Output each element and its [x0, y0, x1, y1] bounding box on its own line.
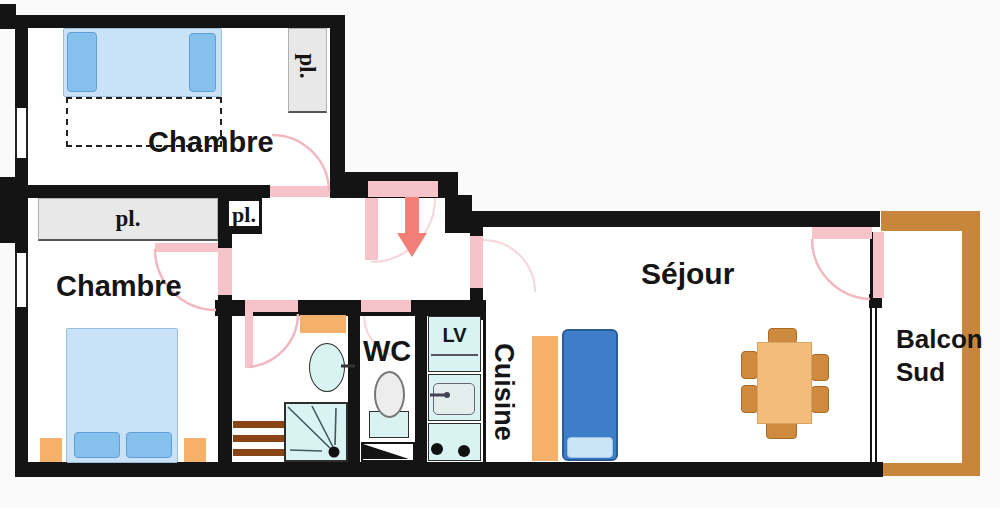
shower — [284, 402, 348, 462]
door-bathroom — [245, 300, 298, 312]
entry-door-leaf — [365, 198, 378, 260]
stove — [428, 423, 481, 461]
radiator-bar — [233, 421, 288, 428]
toilet-bowl — [374, 371, 405, 418]
wall-segment — [15, 185, 270, 198]
closet-label: pl. — [226, 202, 262, 228]
room-label-bedroom-top: Chambre — [148, 127, 274, 157]
wall-stub — [0, 177, 18, 243]
duct-box — [361, 442, 415, 462]
room-label-living: Séjour — [641, 258, 734, 290]
nightstand — [40, 438, 62, 462]
closet-label: pl. — [38, 206, 218, 232]
balcony-wall — [883, 463, 980, 476]
radiator-bar — [233, 449, 288, 456]
room-label-bedroom-left: Chambre — [56, 271, 182, 301]
chair — [811, 386, 829, 413]
window-line — [875, 306, 877, 463]
window-line — [870, 306, 872, 463]
wall-segment — [15, 15, 28, 108]
bed-pillow — [126, 432, 172, 458]
bathroom-cabinet — [300, 315, 346, 333]
chair — [741, 351, 758, 379]
wall-segment — [445, 211, 880, 227]
window — [15, 253, 28, 307]
room-label-kitchen: Cuisine — [488, 343, 519, 441]
room-label-wc: WC — [363, 336, 411, 366]
washbasin — [309, 343, 345, 392]
wall-stub — [0, 4, 16, 29]
floor-plan: Chambre Chambre Séjour WC Balcon Sud Cui… — [0, 0, 1000, 508]
living-room-opening — [470, 236, 483, 288]
dining-table — [757, 342, 812, 424]
balcony-door-leaf — [812, 227, 872, 239]
wall-segment — [348, 316, 360, 463]
wall-segment — [15, 462, 883, 477]
chair — [741, 385, 758, 413]
wall-segment — [415, 316, 427, 463]
door-bedroom-left — [218, 248, 232, 295]
kitchen-sink-basin — [433, 383, 475, 415]
wall-segment — [330, 15, 345, 198]
nightstand — [184, 438, 206, 462]
shelf-unit — [532, 336, 558, 461]
sofa-pillow — [567, 437, 613, 458]
room-label-balcony: Balcon Sud — [896, 323, 1000, 389]
closet-label: pl. — [294, 54, 320, 79]
wall-segment — [15, 307, 28, 477]
door-bedroom-top — [270, 186, 330, 197]
chair — [811, 354, 829, 381]
radiator-bar — [233, 435, 288, 442]
bed-pillow — [67, 32, 97, 92]
door-bathroom-leaf — [245, 312, 253, 368]
balcony-door — [873, 232, 884, 298]
dishwasher-line — [431, 354, 478, 356]
bed-pillow — [189, 33, 216, 92]
wall-segment — [15, 15, 345, 28]
door-bedroom-left-leaf — [155, 243, 218, 252]
kitchen-counter-line — [483, 316, 486, 462]
window — [15, 108, 28, 158]
bed-pillow — [74, 432, 120, 458]
entry-door — [368, 181, 438, 197]
wall-segment — [218, 295, 232, 477]
door-wc — [361, 300, 411, 312]
appliance-label-dishwasher: LV — [428, 324, 481, 347]
